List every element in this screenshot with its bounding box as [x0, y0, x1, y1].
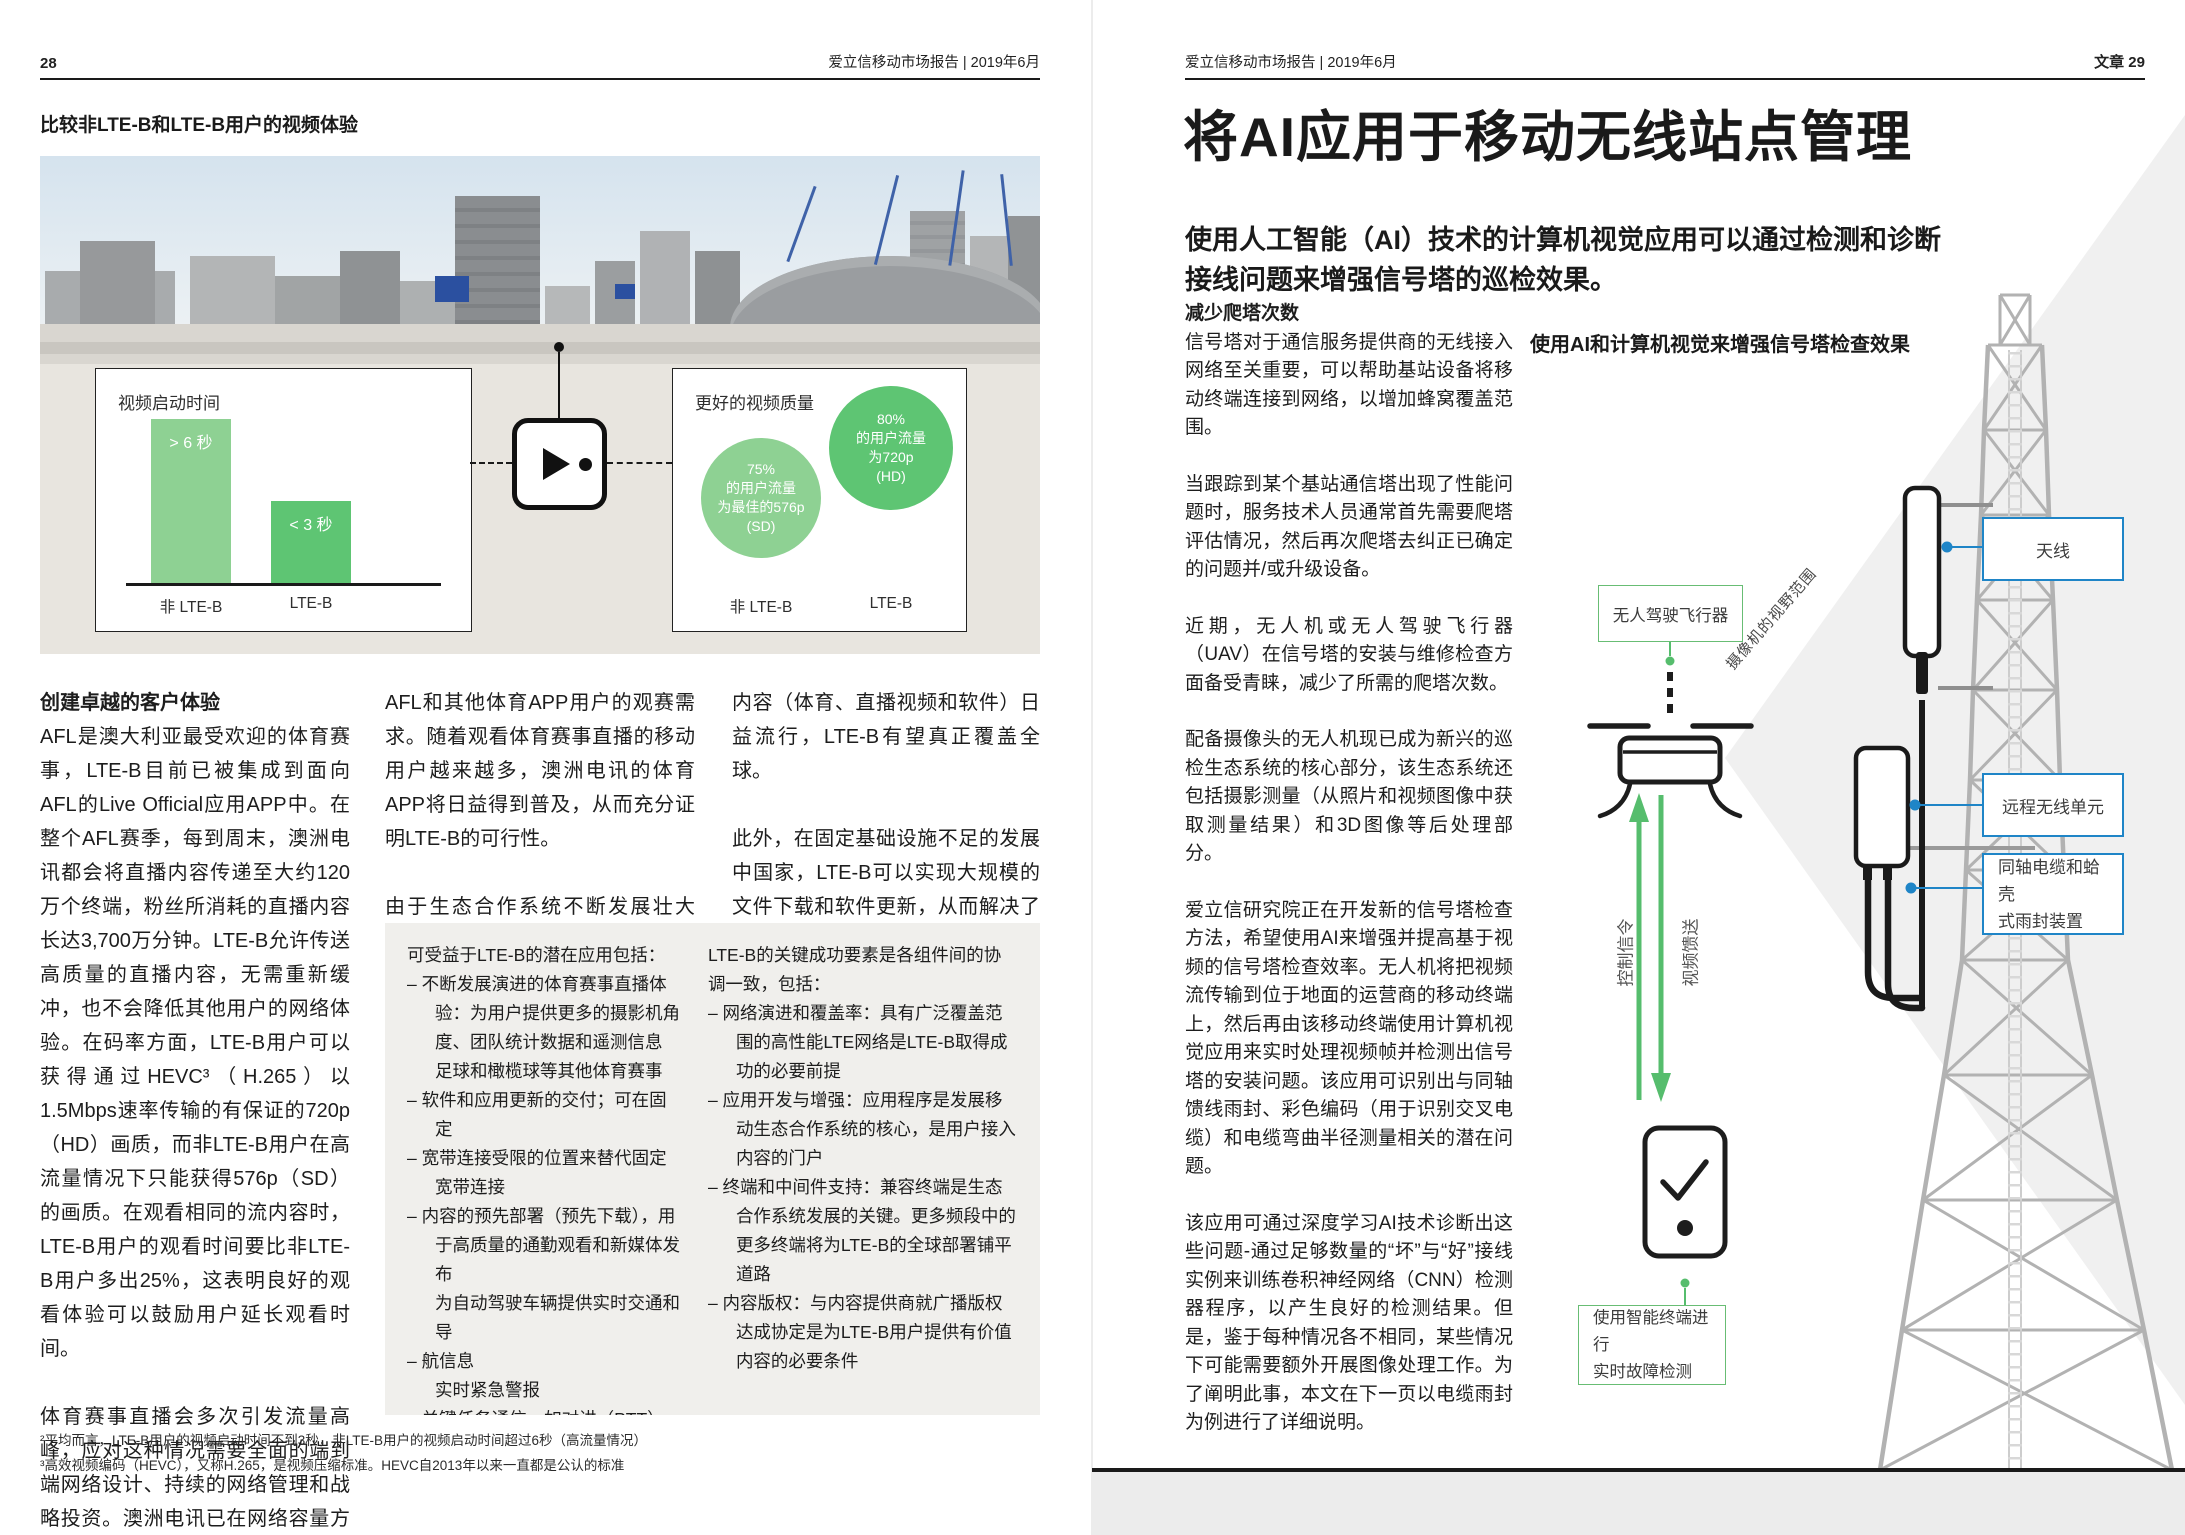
left-page-header: 28 爱立信移动市场报告 | 2019年6月 — [40, 46, 1040, 72]
video-player-icon — [512, 418, 607, 510]
building — [340, 251, 400, 328]
player-connector-dot — [554, 342, 564, 352]
building — [275, 276, 345, 328]
lte-b-benefits-box: 可受益于LTE-B的潜在应用包括： – 不断发展演进的体育赛事直播体验：为用户提… — [385, 923, 1040, 1415]
smartphone-icon — [1645, 1128, 1725, 1256]
right-page-number: 文章 29 — [2094, 51, 2145, 72]
bar-category: 非 LTE-B — [136, 595, 246, 617]
benefits-col-1: 可受益于LTE-B的潜在应用包括： – 不断发展演进的体育赛事直播体验：为用户提… — [407, 941, 682, 1397]
list-item: – 宽带连接受限的位置来替代固定宽带连接 — [407, 1144, 682, 1202]
footnote-2: ²平均而言，LTE-B用户的视频启动时间不到3秒，非LTE-B用户的视频启动时间… — [40, 1428, 1040, 1453]
list-item: – 航信息 实时紧急警报 — [407, 1347, 682, 1405]
drone-icon — [1590, 726, 1751, 816]
building — [640, 231, 690, 328]
list-item: – 内容版权：与内容提供商就广播版权达成协定是为LTE-B用户提供有价值内容的必… — [708, 1289, 1018, 1376]
paragraph: 信号塔对于通信服务提供商的无线接入网络至关重要，可以帮助基站设备将移动终端连接到… — [1185, 329, 1513, 443]
report-spread: 28 爱立信移动市场报告 | 2019年6月 比较非LTE-B和LTE-B用户的… — [0, 0, 2185, 1535]
list-item: – 终端和中间件支持：兼容终端是生态合作系统发展的关键。更多频段中的更多终端将为… — [708, 1173, 1018, 1289]
paragraph: 近期，无人机或无人驾驶飞行器（UAV）在信号塔的安装与维修检查方面备受青睐，减少… — [1185, 613, 1513, 699]
benefits-intro: 可受益于LTE-B的潜在应用包括： — [407, 941, 682, 970]
bubble-non-lte-b: 75% 的用户流量 为最佳的576p (SD) — [701, 438, 821, 558]
paragraph: 该应用可通过深度学习AI技术诊断出这些问题-通过足够数量的“坏”与“好”接线实例… — [1185, 1210, 1513, 1438]
coax-label: 同轴电缆和蛤壳 式雨封装置 — [1982, 853, 2124, 935]
footnotes: ²平均而言，LTE-B用户的视频启动时间不到3秒，非LTE-B用户的视频启动时间… — [40, 1428, 1040, 1478]
startup-card-title: 视频启动时间 — [118, 389, 220, 414]
video-feed-label: 视频馈送 — [1677, 888, 1702, 1018]
list-item: – 软件和应用更新的交付；可在固定 — [407, 1086, 682, 1144]
antenna-cable-stub — [1916, 652, 1928, 694]
quality-card-title: 更好的视频质量 — [695, 389, 814, 414]
column-heading: 创建卓越的客户体验 — [40, 692, 220, 714]
lte-b-figure: 视频启动时间 > 6 秒 < 3 秒 非 LTE-B LTE-B 更好的视频质量… — [40, 156, 1040, 654]
tall-building — [455, 196, 540, 328]
building — [80, 241, 155, 328]
footnote-3: ³高效视频编码（HEVC），又称H.265，是视频压缩标准。HEVC自2013年… — [40, 1453, 1040, 1478]
startup-time-card: 视频启动时间 > 6 秒 < 3 秒 非 LTE-B LTE-B — [95, 368, 472, 632]
paragraph: 爱立信研究院正在开发新的信号塔检查方法，希望使用AI来增强并提高基于视频的信号塔… — [1185, 897, 1513, 1182]
video-quality-card: 更好的视频质量 75% 的用户流量 为最佳的576p (SD) 80% 的用户流… — [672, 368, 967, 632]
bubble-category: 非 LTE-B — [706, 595, 816, 617]
city-road — [40, 342, 1040, 354]
phone-detection-label: 使用智能终端进行 实时故障检测 — [1578, 1305, 1726, 1385]
ground-band — [1092, 1472, 2185, 1535]
bar-category: LTE-B — [256, 595, 366, 613]
list-item: – 内容的预先部署（预先下载），用于高质量的通勤观看和新媒体发布 为自动驾驶车辆… — [407, 1202, 682, 1347]
city-illustration — [40, 156, 1040, 364]
paragraph: 当跟踪到某个基站通信塔出现了性能问题时，服务技术人员通常首先需要爬塔评估情况，然… — [1185, 471, 1513, 585]
rru-connector — [1863, 864, 1872, 880]
page-gutter — [1091, 0, 1093, 1535]
success-factors-intro: LTE-B的关键成功要素是各组件间的协调一致，包括： — [708, 941, 1018, 999]
bubble-category: LTE-B — [836, 595, 946, 613]
dashed-connector — [607, 462, 672, 464]
control-signal-label: 控制信令 — [1612, 888, 1637, 1018]
billboard — [615, 284, 635, 299]
bar-non-lte-b: > 6 秒 — [151, 419, 231, 583]
figure-title: 比较非LTE-B和LTE-B用户的视频体验 — [40, 110, 358, 137]
left-page-number: 28 — [40, 55, 57, 72]
stadium-mast — [786, 186, 816, 262]
camera-fov-wedge — [1725, 115, 2185, 1405]
rru-connector — [1883, 864, 1892, 880]
paragraph: AFL和其他体育APP用户的观赛需求。随着观看体育赛事直播的移动用户越来越多，澳… — [385, 686, 695, 856]
benefits-col-2: LTE-B的关键成功要素是各组件间的协调一致，包括： – 网络演进和覆盖率：具有… — [708, 941, 1018, 1397]
antenna — [1905, 488, 1939, 656]
right-column: 减少爬塔次数 信号塔对于通信服务提供商的无线接入网络至关重要，可以帮助基站设备将… — [1185, 300, 1513, 1466]
bubble-lte-b: 80% 的用户流量 为720p (HD) — [829, 386, 953, 510]
building — [545, 286, 590, 328]
uav-connector — [1666, 642, 1675, 713]
building — [190, 256, 275, 328]
right-header-rule — [1185, 78, 2145, 80]
paragraph: AFL是澳大利亚最受欢迎的体育赛事，LTE-B目前已被集成到面向AFL的Live… — [40, 720, 350, 1366]
bar-axis — [126, 583, 441, 586]
player-dot-icon — [579, 458, 592, 471]
paragraph: 内容（体育、直播视频和软件）日益流行，LTE-B有望真正覆盖全球。 — [732, 686, 1040, 788]
phone-connector — [1681, 1279, 1690, 1307]
stadium-mast — [874, 175, 899, 265]
bar-lte-b: < 3 秒 — [271, 501, 351, 583]
list-item: – 关键任务通信，如对讲（PTT）服务 — [407, 1405, 682, 1415]
right-header-title: 爱立信移动市场报告 | 2019年6月 — [1185, 51, 1397, 72]
list-item: – 应用开发与增强：应用程序是发展移动生态合作系统的核心，是用户接入内容的门户 — [708, 1086, 1018, 1173]
left-header-rule — [40, 78, 1040, 80]
list-item: – 网络演进和覆盖率：具有广泛覆盖范围的高性能LTE网络是LTE-B取得成功的必… — [708, 999, 1018, 1086]
player-connector-line — [558, 352, 560, 418]
left-column-1: 创建卓越的客户体验 AFL是澳大利亚最受欢迎的体育赛事，LTE-B目前已被集成到… — [40, 686, 350, 1535]
dashed-connector — [470, 462, 512, 464]
paragraph: 配备摄像头的无人机现已成为新兴的巡检生态系统的核心部分，该生态系统还包括摄影测量… — [1185, 726, 1513, 869]
antenna-label: 天线 — [1982, 517, 2124, 581]
rru-label: 远程无线单元 — [1982, 773, 2124, 837]
remote-radio-unit — [1856, 748, 1908, 866]
play-icon — [543, 448, 570, 480]
column-heading: 减少爬塔次数 — [1185, 303, 1299, 324]
uav-label: 无人驾驶飞行器 — [1598, 585, 1743, 642]
right-page-header: 爱立信移动市场报告 | 2019年6月 文章 29 — [1185, 46, 2145, 72]
left-header-title: 爱立信移动市场报告 | 2019年6月 — [828, 51, 1040, 72]
video-feed-arrow — [1651, 795, 1671, 1102]
billboard — [435, 276, 469, 302]
list-item: – 不断发展演进的体育赛事直播体验：为用户提供更多的摄影机角度、团队统计数据和遥… — [407, 970, 682, 1086]
